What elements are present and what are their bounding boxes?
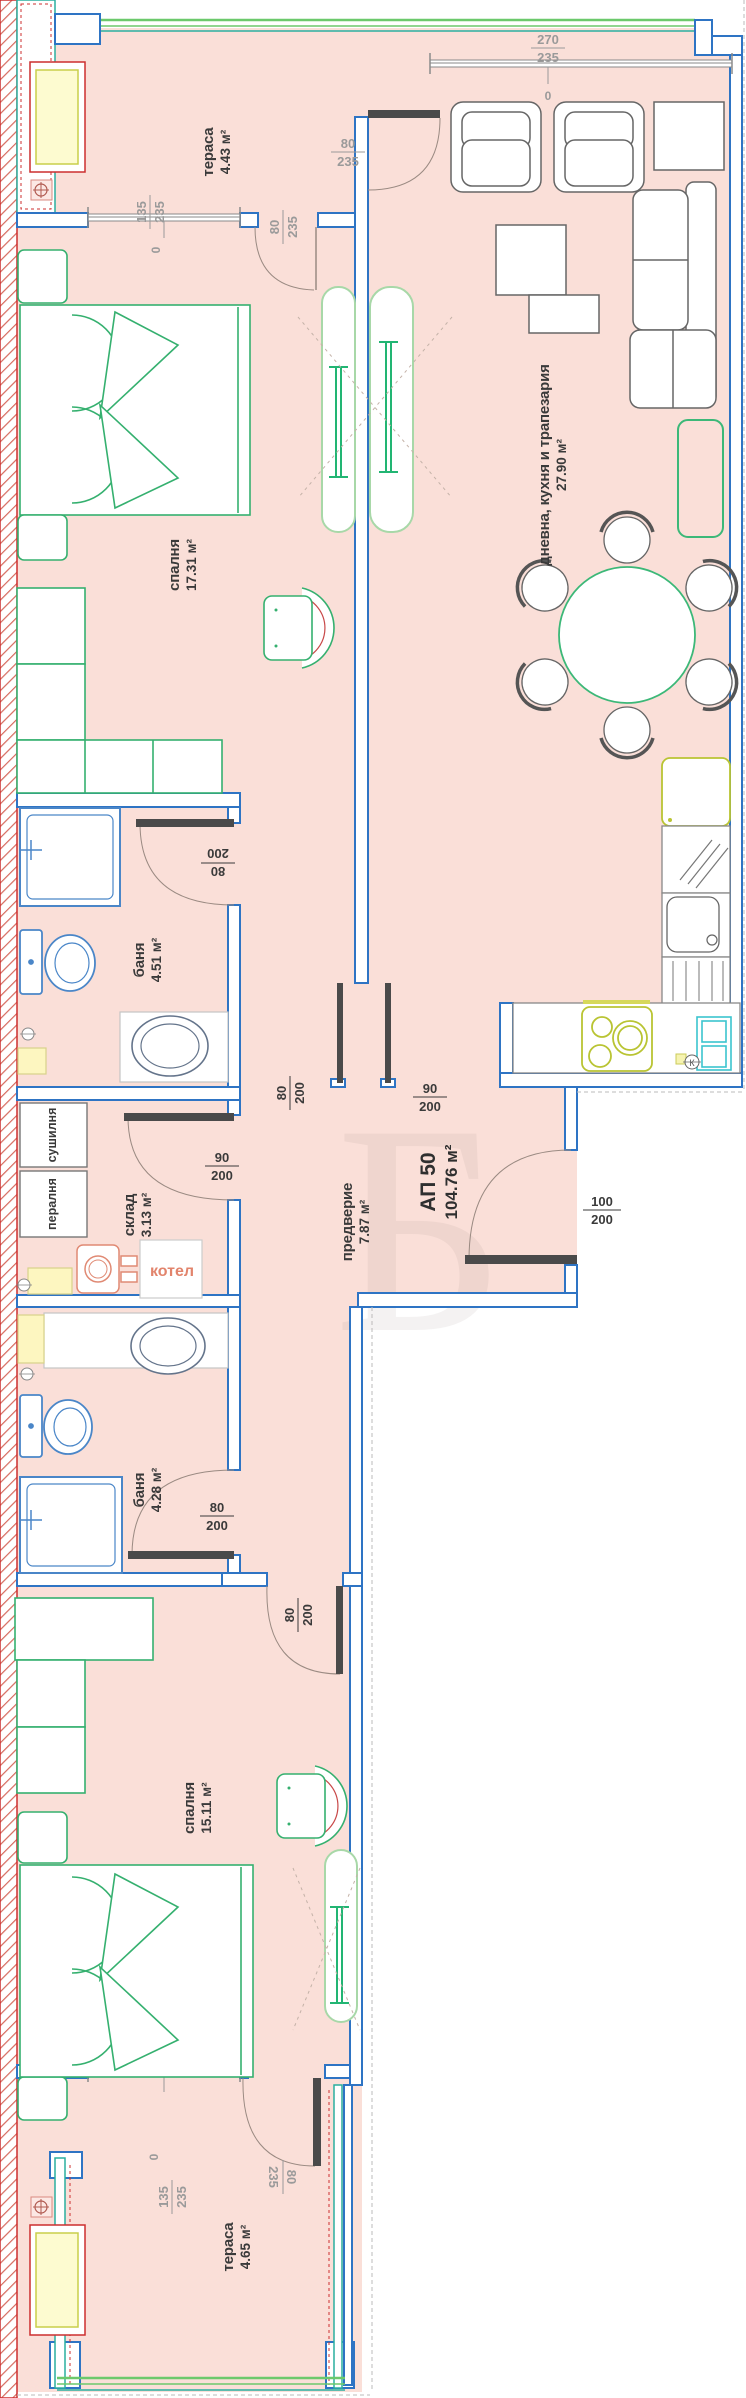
svg-text:4.51 м²: 4.51 м² xyxy=(149,937,164,982)
dining-table xyxy=(559,567,695,703)
svg-text:200: 200 xyxy=(292,1082,307,1104)
svg-text:склад: склад xyxy=(121,1193,138,1236)
toilet xyxy=(20,930,95,994)
svg-text:тераса: тераса xyxy=(200,127,217,177)
svg-text:баня: баня xyxy=(131,943,148,978)
dim-zero: 0 xyxy=(545,89,552,103)
window-box-glass xyxy=(36,2233,78,2327)
svg-text:90: 90 xyxy=(423,1081,437,1096)
svg-text:235: 235 xyxy=(537,50,559,65)
boiler-label: котел xyxy=(150,1263,194,1280)
room-label-terrace-bottom: тераса 4.65 м² xyxy=(220,2222,253,2272)
side-table xyxy=(654,102,724,170)
wardrobe xyxy=(17,588,85,664)
door-leaf-corridor-top xyxy=(368,110,440,118)
dim-zero: 0 xyxy=(149,246,163,253)
svg-text:80: 80 xyxy=(341,136,355,151)
dim-zero: 0 xyxy=(147,2153,161,2160)
door-leaf-bedroom-bottom xyxy=(336,1586,343,1674)
cooktop xyxy=(582,1007,652,1071)
svg-text:К: К xyxy=(689,1058,695,1068)
washer-label: пералня xyxy=(45,1178,59,1230)
svg-text:235: 235 xyxy=(337,154,359,169)
drying-rack xyxy=(662,957,730,1005)
room-label-bedroom-top: спалня 17.31 м² xyxy=(166,538,199,591)
wardrobe xyxy=(17,1727,85,1793)
party-wall-hatched xyxy=(0,0,17,2398)
svg-text:27.90 м²: 27.90 м² xyxy=(554,438,569,491)
nightstand xyxy=(18,515,67,560)
svg-text:235: 235 xyxy=(285,216,300,238)
coffee-table xyxy=(529,295,599,333)
svg-text:3.13 м²: 3.13 м² xyxy=(139,1192,154,1237)
svg-text:АП 50: АП 50 xyxy=(417,1152,440,1211)
door-leaf-storage xyxy=(124,1113,234,1121)
towel-rail xyxy=(18,1048,46,1074)
door-leaf-bath-top xyxy=(136,819,234,827)
dim-entrance-100-200: 100200 xyxy=(583,1194,621,1227)
counter-edge xyxy=(583,1000,650,1004)
svg-text:135: 135 xyxy=(134,201,149,223)
wardrobe xyxy=(17,1660,85,1727)
svg-text:спалня: спалня xyxy=(166,539,183,591)
balcony-divider xyxy=(55,14,100,44)
toilet xyxy=(20,1395,92,1457)
svg-text:200: 200 xyxy=(300,1604,315,1626)
nightstand xyxy=(18,1812,67,1863)
base-cabinet xyxy=(697,1017,731,1070)
svg-text:200: 200 xyxy=(591,1212,613,1227)
dresser xyxy=(17,740,222,793)
armchair xyxy=(277,1766,347,1846)
floor-plan-page: Б тераса 4.43 м² xyxy=(0,0,746,2398)
armchair-seat xyxy=(462,140,530,186)
towel-rail xyxy=(18,1315,44,1363)
svg-text:15.11 м²: 15.11 м² xyxy=(199,1782,214,1834)
pocket-frame xyxy=(385,983,391,1083)
wardrobe xyxy=(15,1598,153,1660)
pocket-frame xyxy=(337,983,343,1083)
apartment-label: АП 50 104.76 м² xyxy=(417,1144,461,1219)
armchair xyxy=(264,588,334,668)
sliding-pocket xyxy=(322,287,355,532)
svg-text:104.76 м²: 104.76 м² xyxy=(442,1144,461,1219)
lamp-icon xyxy=(31,2197,52,2217)
svg-text:80: 80 xyxy=(282,1608,297,1622)
wardrobe xyxy=(17,664,85,740)
svg-text:80: 80 xyxy=(267,220,282,234)
shower xyxy=(20,808,120,906)
svg-text:дневна, кухня и трапезария: дневна, кухня и трапезария xyxy=(536,364,553,565)
nightstand xyxy=(18,250,67,303)
armchair-seat xyxy=(565,140,633,186)
svg-text:200: 200 xyxy=(207,846,229,861)
svg-text:235: 235 xyxy=(152,201,167,223)
sink xyxy=(132,1016,208,1076)
svg-text:80: 80 xyxy=(284,2170,299,2184)
svg-text:7.87 м²: 7.87 м² xyxy=(357,1199,372,1244)
svg-text:80: 80 xyxy=(274,1086,289,1100)
floor-plan: Б тераса 4.43 м² xyxy=(0,0,746,2398)
coffee-table xyxy=(496,225,566,295)
svg-text:4.43 м²: 4.43 м² xyxy=(218,129,233,174)
svg-text:4.28 м²: 4.28 м² xyxy=(149,1467,164,1512)
svg-text:100: 100 xyxy=(591,1194,613,1209)
electrical-panel xyxy=(28,1268,72,1294)
svg-text:90: 90 xyxy=(215,1150,229,1165)
svg-text:135: 135 xyxy=(156,2186,171,2208)
shower xyxy=(20,1477,122,1573)
window-box-glass xyxy=(36,70,78,164)
svg-text:235: 235 xyxy=(174,2186,189,2208)
svg-text:предверие: предверие xyxy=(339,1183,356,1261)
fridge xyxy=(662,758,730,826)
svg-text:4.65 м²: 4.65 м² xyxy=(238,2224,253,2269)
svg-text:200: 200 xyxy=(206,1518,228,1533)
svg-text:235: 235 xyxy=(266,2166,281,2188)
svg-text:тераса: тераса xyxy=(220,2222,237,2272)
svg-text:80: 80 xyxy=(211,864,225,879)
svg-text:80: 80 xyxy=(210,1500,224,1515)
sink xyxy=(131,1318,205,1374)
svg-text:баня: баня xyxy=(131,1473,148,1508)
door-leaf-entrance xyxy=(465,1255,577,1264)
nightstand xyxy=(18,2077,67,2120)
door-leaf-bath-bottom xyxy=(128,1551,234,1559)
door-leaf-terrace-bottom xyxy=(313,2078,321,2166)
room-label-bedroom-bottom: спалня 15.11 м² xyxy=(181,1782,214,1834)
svg-text:200: 200 xyxy=(419,1099,441,1114)
room-label-bath-bottom: баня 4.28 м² xyxy=(131,1467,164,1512)
dryer-label: сушилня xyxy=(45,1108,59,1163)
room-label-bath-top: баня 4.51 м² xyxy=(131,937,164,982)
svg-text:270: 270 xyxy=(537,32,559,47)
room-label-terrace-top: тераса 4.43 м² xyxy=(200,127,233,177)
lamp-icon xyxy=(31,180,52,200)
svg-text:17.31 м²: 17.31 м² xyxy=(184,538,199,591)
svg-text:200: 200 xyxy=(211,1168,233,1183)
svg-text:спалня: спалня xyxy=(181,1782,198,1834)
room-label-storage: склад 3.13 м² xyxy=(121,1192,154,1237)
parapet xyxy=(334,2085,342,2388)
